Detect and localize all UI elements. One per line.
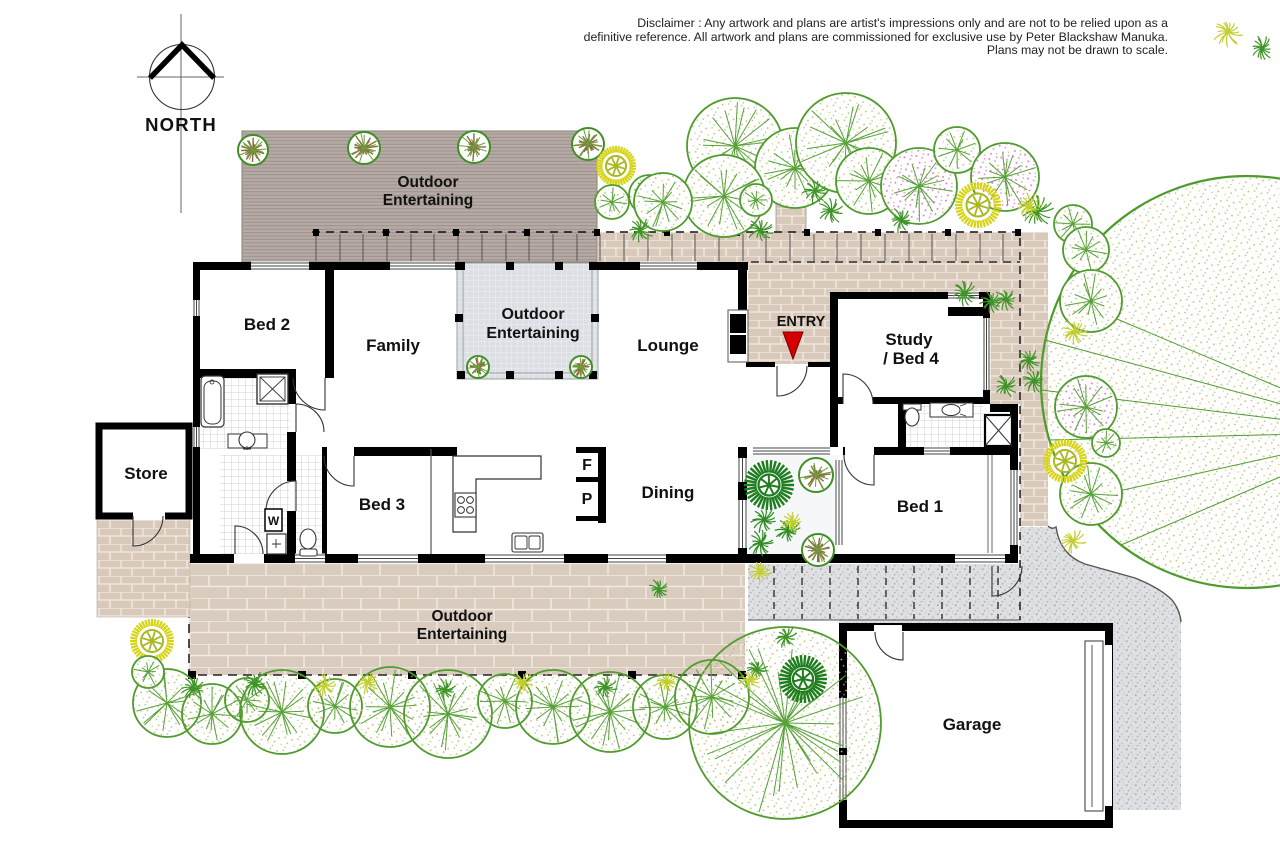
svg-text:Plans may not be drawn to scal: Plans may not be drawn to scale.: [987, 43, 1168, 57]
svg-text:definitive reference. All artw: definitive reference. All artwork and pl…: [584, 30, 1168, 44]
svg-text:P: P: [582, 491, 593, 508]
svg-text:Store: Store: [124, 464, 167, 483]
svg-text:Disclaimer : Any artwork and p: Disclaimer : Any artwork and plans are a…: [637, 16, 1168, 30]
svg-text:Bed 2: Bed 2: [244, 315, 290, 334]
svg-text:Dining: Dining: [642, 483, 695, 502]
svg-text:Family: Family: [366, 336, 420, 355]
svg-text:Bed 3: Bed 3: [359, 495, 405, 514]
svg-text:Outdoor: Outdoor: [431, 608, 492, 625]
svg-text:Outdoor: Outdoor: [397, 174, 458, 191]
svg-text:Lounge: Lounge: [637, 336, 698, 355]
svg-text:Entertaining: Entertaining: [486, 325, 579, 342]
svg-text:Outdoor: Outdoor: [501, 306, 564, 323]
svg-text:/ Bed 4: / Bed 4: [883, 349, 939, 368]
svg-text:Bed 1: Bed 1: [897, 497, 943, 516]
svg-text:NORTH: NORTH: [145, 114, 217, 135]
svg-text:Study: Study: [885, 330, 933, 349]
svg-text:Entertaining: Entertaining: [417, 626, 507, 643]
svg-text:Entertaining: Entertaining: [383, 192, 473, 209]
svg-text:F: F: [582, 457, 592, 474]
svg-text:ENTRY: ENTRY: [777, 314, 826, 330]
svg-text:W: W: [268, 514, 280, 528]
svg-text:Garage: Garage: [943, 715, 1002, 734]
